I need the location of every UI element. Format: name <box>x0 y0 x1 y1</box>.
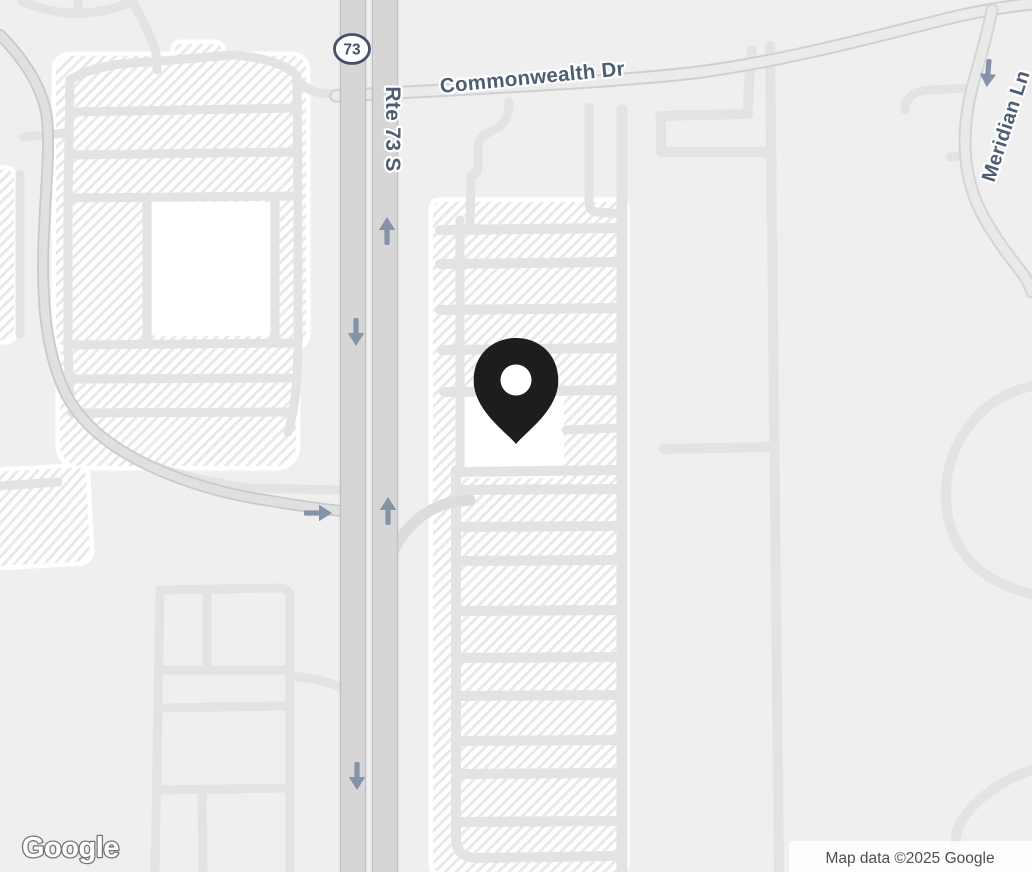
road-label-rte73s: Rte 73 S <box>381 86 404 171</box>
route-shield-label: 73 <box>343 42 361 59</box>
map-canvas[interactable]: 73 Commonwealth Dr Rte 73 S Meridian Ln … <box>0 0 1032 872</box>
map-svg: 73 Commonwealth Dr Rte 73 S Meridian Ln … <box>0 0 1032 872</box>
google-logo[interactable]: Google <box>22 832 119 864</box>
attribution-bar: Map data ©2025 Google <box>789 841 1032 872</box>
route-shield-73: 73 <box>335 35 370 64</box>
attribution-text: Map data ©2025 Google <box>825 850 994 867</box>
pin-hole <box>501 365 532 396</box>
building-left-lot <box>152 202 270 336</box>
